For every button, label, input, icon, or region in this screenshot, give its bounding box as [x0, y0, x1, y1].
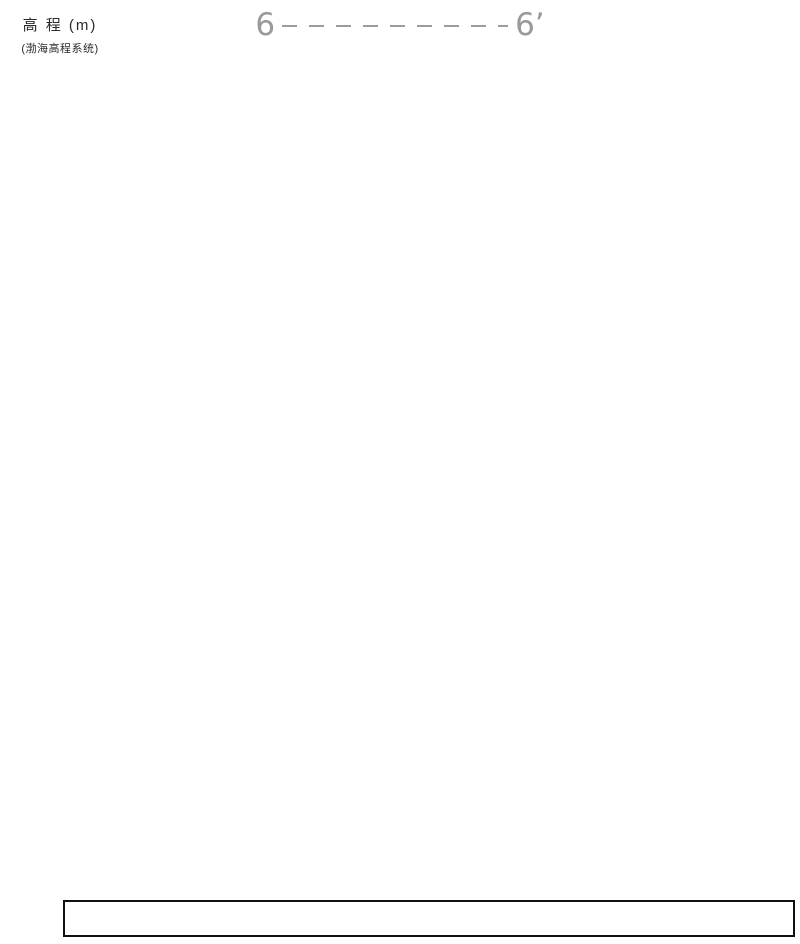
cross-section-canvas — [0, 0, 800, 944]
geological-cross-section: 6 6’ 高 程 (m) (渤海高程系统) — [0, 0, 800, 944]
distance-table — [63, 900, 795, 937]
